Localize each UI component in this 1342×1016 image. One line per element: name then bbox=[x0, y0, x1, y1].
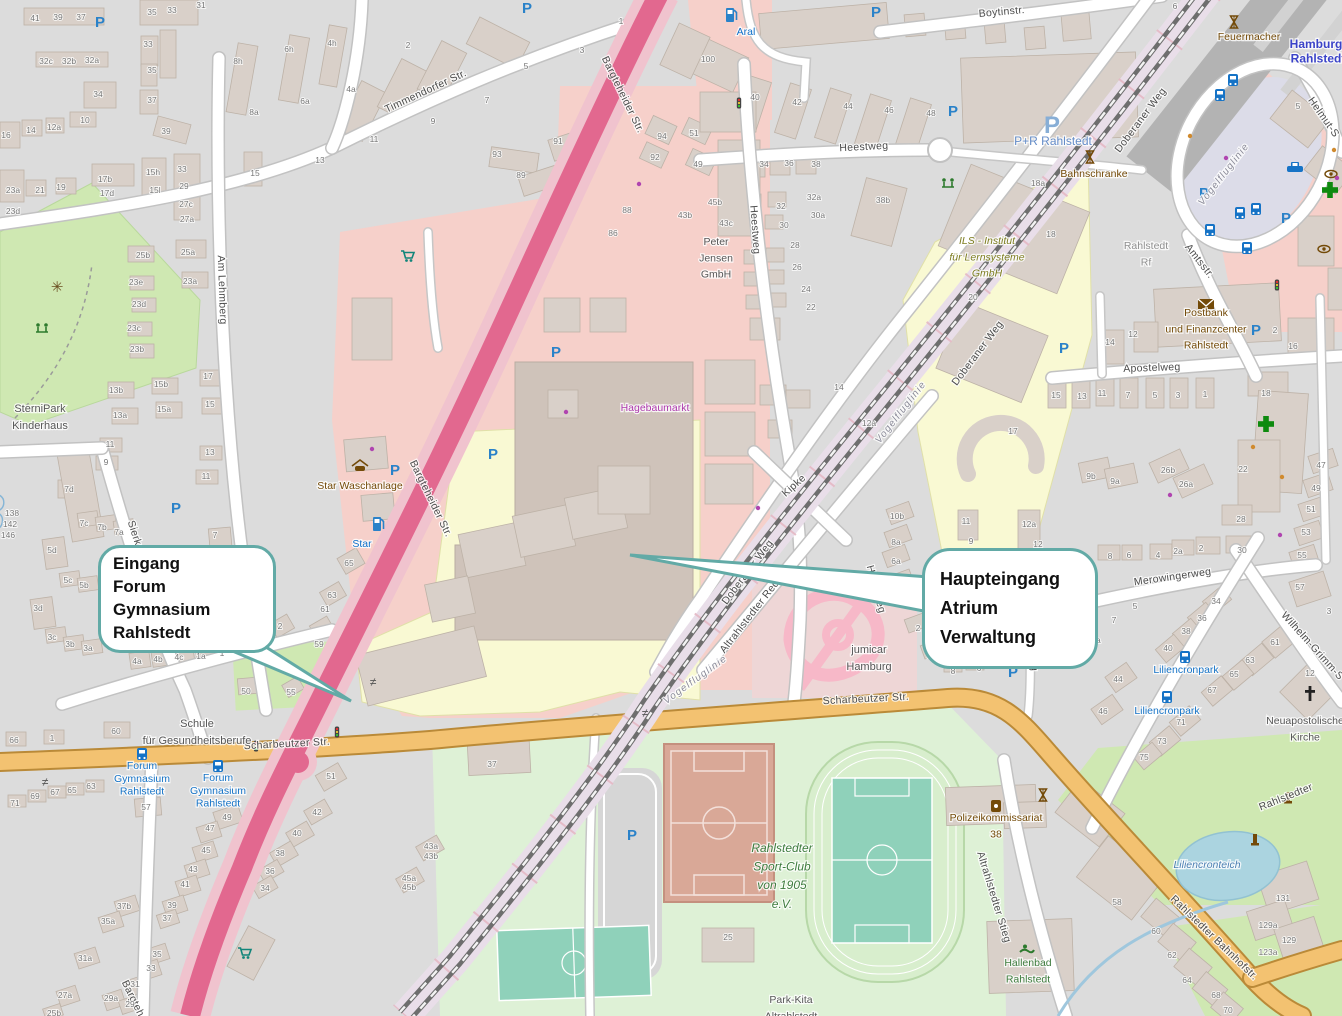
house-number: 28 bbox=[1236, 514, 1246, 524]
house-number: 123a bbox=[1259, 947, 1278, 957]
building bbox=[344, 436, 389, 472]
house-number: 32 bbox=[776, 201, 786, 211]
house-number: 57 bbox=[1295, 582, 1305, 592]
house-number: 12a bbox=[862, 418, 876, 428]
house-number: 9 bbox=[969, 536, 974, 546]
building bbox=[766, 248, 784, 262]
house-number: 15b bbox=[154, 379, 168, 389]
house-number: 14 bbox=[834, 382, 844, 392]
house-number: 18 bbox=[1046, 229, 1056, 239]
house-number: 33 bbox=[146, 963, 156, 973]
poi-label: Hallenbad bbox=[1004, 957, 1051, 969]
callout-line: Haupteingang bbox=[940, 565, 1080, 594]
house-number: 25 bbox=[723, 932, 733, 942]
house-number: 58 bbox=[1112, 897, 1122, 907]
house-number: 92 bbox=[650, 152, 660, 162]
house-number: 29 bbox=[179, 181, 189, 191]
callout-haupteingang-atrium: Haupteingang Atrium Verwaltung bbox=[922, 548, 1098, 669]
house-number: 35 bbox=[147, 7, 157, 17]
house-number: 33 bbox=[167, 5, 177, 15]
house-number: 131 bbox=[1276, 893, 1290, 903]
house-number: 23d bbox=[132, 299, 146, 309]
police-icon bbox=[991, 800, 1001, 812]
house-number: 25b bbox=[136, 250, 150, 260]
bus-stop-icon bbox=[1235, 207, 1245, 219]
parking-icon: P bbox=[1281, 210, 1291, 227]
poi-label: Neuapostolische bbox=[1266, 715, 1342, 727]
house-number: 3b bbox=[65, 639, 75, 649]
callout-line: Forum Gymnasium bbox=[113, 576, 261, 622]
traffic-light-icon bbox=[335, 727, 339, 738]
house-number: 14 bbox=[1105, 337, 1115, 347]
house-number: 63 bbox=[1245, 655, 1255, 665]
building bbox=[590, 298, 626, 332]
house-number: 67 bbox=[1207, 685, 1217, 695]
bus-stop-icon bbox=[137, 748, 147, 760]
house-number: 3d bbox=[33, 603, 43, 613]
house-number: 29 bbox=[125, 999, 135, 1009]
building bbox=[1298, 216, 1334, 266]
poi-label: und Finanzcenter bbox=[1165, 323, 1247, 335]
building bbox=[1238, 440, 1280, 512]
house-number: 4b bbox=[153, 654, 163, 664]
house-number: 43b bbox=[678, 210, 692, 220]
house-number: 93 bbox=[492, 149, 502, 159]
house-number: 1 bbox=[1203, 389, 1208, 399]
poi-dot-icon bbox=[756, 506, 760, 510]
house-number: 88 bbox=[622, 205, 632, 215]
house-number: 66 bbox=[9, 735, 19, 745]
building bbox=[1024, 26, 1046, 50]
house-number: 4 bbox=[905, 594, 910, 604]
house-number: 31a bbox=[78, 953, 92, 963]
callout-line: Eingang bbox=[113, 553, 261, 576]
poi-label: Altrahlstedt bbox=[765, 1010, 818, 1016]
house-number: 34 bbox=[93, 89, 103, 99]
house-number: 15 bbox=[1051, 390, 1061, 400]
house-number: 3 bbox=[1176, 390, 1181, 400]
bus-stop-icon bbox=[1215, 89, 1225, 101]
house-number: 13 bbox=[205, 447, 215, 457]
house-number: 4a bbox=[132, 656, 142, 666]
parking-icon: P bbox=[171, 500, 181, 517]
parking-icon: P bbox=[551, 344, 561, 361]
house-number: 8 bbox=[1108, 551, 1113, 561]
house-number: 65 bbox=[67, 785, 77, 795]
house-number: 36 bbox=[784, 158, 794, 168]
parking-icon: P bbox=[488, 446, 498, 463]
house-number: 40 bbox=[1163, 643, 1173, 653]
poi-label: GmbH bbox=[701, 269, 731, 281]
house-number: 38 bbox=[811, 159, 821, 169]
house-number: 73 bbox=[1157, 736, 1167, 746]
poi-label: für Gesundheitsberufe bbox=[143, 735, 252, 747]
parking-icon: P bbox=[1059, 340, 1069, 357]
transit-stop-label: Rahlstedt bbox=[120, 786, 164, 798]
house-number: 17b bbox=[98, 174, 112, 184]
house-number: 37 bbox=[147, 95, 157, 105]
house-number: 3c bbox=[48, 632, 58, 642]
street-label: Heestweg bbox=[839, 140, 889, 155]
map-canvas: PPPPPPPPPPPPPPP✳≠≠≠ Timmendorfer Str.Bar… bbox=[0, 0, 1342, 1016]
house-number: 4a bbox=[898, 577, 908, 587]
house-number: 23b bbox=[130, 344, 144, 354]
house-number: 22 bbox=[1238, 464, 1248, 474]
house-number: 61 bbox=[1270, 637, 1280, 647]
house-number: 42 bbox=[312, 807, 322, 817]
house-number: 32b bbox=[62, 56, 76, 66]
house-number: 24 bbox=[801, 284, 811, 294]
house-number: 31 bbox=[196, 0, 206, 10]
house-number: 34 bbox=[260, 883, 270, 893]
poi-label: e.V. bbox=[772, 897, 792, 911]
poi-label: Polizeikommissariat bbox=[950, 812, 1043, 824]
house-number: 51 bbox=[326, 771, 336, 781]
parking-icon: P bbox=[627, 827, 637, 844]
house-number: 41 bbox=[180, 879, 190, 889]
transit-stop-label: Gymnasium bbox=[190, 785, 246, 797]
bus-stop-icon bbox=[1162, 691, 1172, 703]
poi-label: Rahlstedt bbox=[1184, 340, 1228, 352]
house-number: 19 bbox=[56, 182, 66, 192]
building bbox=[705, 464, 753, 504]
house-number: 5 bbox=[524, 61, 529, 71]
house-number: 6a bbox=[891, 556, 901, 566]
house-number: 13 bbox=[315, 155, 325, 165]
house-number: 36 bbox=[1197, 613, 1207, 623]
house-number: 49 bbox=[222, 812, 232, 822]
house-number: 8a bbox=[891, 537, 901, 547]
poi-label: Rf bbox=[1141, 256, 1152, 268]
poi-label: Aral bbox=[737, 26, 756, 38]
house-number: 15l bbox=[149, 185, 160, 195]
house-number: 35 bbox=[152, 949, 162, 959]
house-number: 42 bbox=[792, 97, 802, 107]
traffic-light-icon bbox=[1275, 280, 1279, 291]
poi-dot-icon bbox=[1251, 445, 1255, 449]
house-number: 6h bbox=[284, 44, 294, 54]
building bbox=[352, 298, 392, 360]
house-number: 7a bbox=[114, 527, 124, 537]
house-number: 51 bbox=[689, 128, 699, 138]
house-number: 129a bbox=[1259, 920, 1278, 930]
transit-stop-label: Rahlstedt bbox=[196, 798, 240, 810]
house-number: 40 bbox=[292, 828, 302, 838]
house-number: 68 bbox=[1211, 990, 1221, 1000]
house-number: 30a bbox=[811, 210, 825, 220]
bus-stop-icon bbox=[1180, 651, 1190, 663]
house-number: 129 bbox=[1282, 935, 1296, 945]
poi-label: Hamburg bbox=[846, 661, 891, 673]
poi-label: Hagebaumarkt bbox=[621, 402, 690, 414]
house-number: 43c bbox=[719, 218, 733, 228]
house-number: 3 bbox=[580, 45, 585, 55]
house-number: 36 bbox=[265, 866, 275, 876]
house-number: 12a bbox=[1022, 519, 1036, 529]
house-number: 60 bbox=[111, 726, 121, 736]
house-number: 67 bbox=[50, 787, 60, 797]
house-number: 33 bbox=[143, 39, 153, 49]
house-number: 6 bbox=[1127, 550, 1132, 560]
house-number: 46 bbox=[1098, 706, 1108, 716]
house-number: 2 bbox=[406, 40, 411, 50]
house-number: 15h bbox=[146, 167, 160, 177]
house-number: 17d bbox=[100, 188, 114, 198]
poi-label: Feuermacher bbox=[1218, 31, 1281, 43]
poi-dot-icon bbox=[1278, 533, 1282, 537]
house-number: 2 bbox=[1273, 325, 1278, 335]
house-number: 48 bbox=[926, 108, 936, 118]
callout-line: Verwaltung bbox=[940, 623, 1080, 652]
house-number: 39 bbox=[167, 900, 177, 910]
house-number: 25b bbox=[47, 1008, 61, 1016]
poi-label: Peter bbox=[703, 236, 729, 248]
house-number: 7 bbox=[1126, 390, 1131, 400]
house-number: 49 bbox=[1311, 483, 1321, 493]
house-number: 45 bbox=[201, 845, 211, 855]
house-number: 14 bbox=[26, 125, 36, 135]
house-number: 10b bbox=[890, 511, 904, 521]
house-number: 4 bbox=[1156, 550, 1161, 560]
house-number: 71 bbox=[1176, 717, 1186, 727]
house-number: 35 bbox=[147, 65, 157, 75]
traffic-light-icon bbox=[737, 98, 741, 109]
house-number: 23e bbox=[129, 277, 143, 287]
house-number: 17 bbox=[1008, 426, 1018, 436]
house-number: 12 bbox=[1305, 668, 1315, 678]
house-number: 5d bbox=[47, 545, 57, 555]
poi-label: GmbH bbox=[972, 268, 1003, 280]
house-number: 59 bbox=[314, 639, 324, 649]
house-number: 86 bbox=[608, 228, 618, 238]
house-number: 55 bbox=[1297, 550, 1307, 560]
house-number: 4h bbox=[327, 38, 337, 48]
house-number: 53 bbox=[1301, 527, 1311, 537]
poi-dot-icon bbox=[1168, 493, 1172, 497]
house-number: 23c bbox=[127, 323, 141, 333]
bus-stop-icon bbox=[1251, 203, 1261, 215]
house-number: 49 bbox=[693, 159, 703, 169]
poi-label: für Lernsysteme bbox=[949, 251, 1024, 263]
parking-icon: P bbox=[871, 4, 881, 21]
house-number: 22 bbox=[806, 302, 816, 312]
house-number: 63 bbox=[86, 781, 96, 791]
house-number: 38 bbox=[275, 848, 285, 858]
poi-dot-icon bbox=[1335, 176, 1339, 180]
house-number: 25a bbox=[181, 247, 195, 257]
street-label: Apostelweg bbox=[1123, 361, 1181, 375]
house-number: 4a bbox=[346, 84, 356, 94]
house-number: 11 bbox=[370, 134, 379, 144]
house-number: 26 bbox=[792, 262, 802, 272]
house-number: 55 bbox=[286, 687, 296, 697]
house-number: 15 bbox=[205, 399, 215, 409]
building bbox=[705, 360, 755, 404]
house-number: 7b bbox=[97, 522, 107, 532]
house-number: 65 bbox=[1229, 669, 1239, 679]
house-number: 3 bbox=[1327, 606, 1332, 616]
house-number: 18a bbox=[1031, 178, 1045, 188]
building bbox=[786, 390, 810, 408]
poi-label: SterniPark bbox=[14, 403, 66, 415]
house-number: 47 bbox=[1316, 460, 1326, 470]
house-number: 100 bbox=[701, 54, 715, 64]
map-screenshot: PPPPPPPPPPPPPPP✳≠≠≠ Timmendorfer Str.Bar… bbox=[0, 0, 1342, 1016]
house-number: 33 bbox=[177, 164, 187, 174]
house-number: 30 bbox=[779, 220, 789, 230]
house-number: 43 bbox=[188, 864, 198, 874]
house-number: 45b bbox=[402, 882, 416, 892]
bus-stop-icon bbox=[1228, 74, 1238, 86]
house-number: 20 bbox=[968, 292, 978, 302]
poi-label: Rahlstedt bbox=[1006, 973, 1050, 985]
house-number: 32c bbox=[39, 56, 53, 66]
house-number: 5b bbox=[79, 580, 89, 590]
house-number: 51 bbox=[1306, 504, 1316, 514]
house-number: 34 bbox=[1211, 596, 1221, 606]
house-number: 38b bbox=[876, 195, 890, 205]
house-number: 65 bbox=[344, 558, 354, 568]
house-number: 7 bbox=[485, 95, 490, 105]
house-number: 23a bbox=[6, 185, 20, 195]
house-number: 21 bbox=[35, 185, 45, 195]
house-number: 7d bbox=[64, 484, 74, 494]
poi-label: Schule bbox=[180, 718, 214, 730]
poi-label: Sport-Club bbox=[753, 860, 811, 874]
poi-label: von 1905 bbox=[757, 878, 807, 892]
house-number: 13 bbox=[1077, 391, 1087, 401]
house-number: 44 bbox=[843, 101, 853, 111]
poi-dot-icon bbox=[564, 410, 568, 414]
poi-label: Rahlstedter bbox=[751, 841, 813, 855]
level-crossing-icon: ≠ bbox=[642, 706, 649, 720]
transit-stop-label: Rahlstedt bbox=[1291, 52, 1342, 66]
house-number: 9a bbox=[1110, 476, 1120, 486]
poi-label: Park-Kita bbox=[769, 994, 812, 1006]
transit-stop-label: Gymnasium bbox=[114, 773, 170, 785]
house-number: 31 bbox=[130, 979, 140, 989]
house-number: 11 bbox=[962, 516, 971, 526]
house-number: 13a bbox=[113, 410, 127, 420]
poi-label: Liliencronteich bbox=[1173, 859, 1240, 871]
poi-label: P+R Rahlstedt bbox=[1014, 134, 1092, 148]
house-number: 38 bbox=[1181, 626, 1191, 636]
building bbox=[30, 597, 56, 630]
house-number: 47 bbox=[205, 823, 215, 833]
house-number: 64 bbox=[1182, 975, 1192, 985]
house-number: 69 bbox=[30, 791, 40, 801]
parking-icon: P bbox=[95, 14, 105, 31]
house-number: 2 bbox=[1199, 543, 1204, 553]
house-number: 138 bbox=[5, 508, 19, 518]
house-number: 40 bbox=[750, 92, 760, 102]
house-number: 5 bbox=[1133, 601, 1138, 611]
house-number: 46 bbox=[884, 105, 894, 115]
house-number: 10 bbox=[80, 115, 90, 125]
house-number: 12a bbox=[47, 122, 61, 132]
building bbox=[598, 466, 650, 514]
house-number: 6a bbox=[300, 96, 310, 106]
poi-dot-icon bbox=[1332, 148, 1336, 152]
house-number: 32a bbox=[807, 192, 821, 202]
house-number: 16 bbox=[1288, 341, 1298, 351]
house-number: 89 bbox=[516, 170, 526, 180]
building bbox=[1150, 544, 1172, 559]
house-number: 7c bbox=[80, 518, 90, 528]
house-number: 91 bbox=[553, 136, 563, 146]
house-number: 23a bbox=[183, 276, 197, 286]
house-number: 62 bbox=[1167, 950, 1177, 960]
poi-label: Kirche bbox=[1290, 731, 1320, 743]
poi-label: Jensen bbox=[699, 252, 733, 264]
poi-label: Star Waschanlage bbox=[317, 480, 403, 492]
house-number: 1 bbox=[619, 16, 624, 26]
house-number: 57 bbox=[141, 802, 151, 812]
callout-line: Rahlstedt bbox=[113, 622, 261, 645]
poi-label: Postbank bbox=[1184, 307, 1229, 319]
house-number: 5 bbox=[1296, 101, 1301, 111]
house-number: 1 bbox=[50, 733, 55, 743]
house-number: 16 bbox=[1, 130, 11, 140]
building bbox=[1122, 545, 1142, 560]
poi-dot-icon bbox=[1280, 475, 1284, 479]
house-number: 9 bbox=[431, 116, 436, 126]
house-number: 13b bbox=[109, 385, 123, 395]
house-number: 50 bbox=[241, 686, 251, 696]
parking-icon: P bbox=[390, 462, 400, 479]
house-number: 7 bbox=[1112, 615, 1117, 625]
transit-stop-label: Hamburg- bbox=[1290, 37, 1342, 51]
house-number: 6 bbox=[1173, 1, 1178, 11]
poi-label: Star bbox=[352, 538, 372, 550]
house-number: 18 bbox=[1261, 388, 1271, 398]
house-number: 63 bbox=[327, 590, 337, 600]
house-number: 60 bbox=[1151, 926, 1161, 936]
house-number: 12 bbox=[1128, 329, 1138, 339]
transit-stop-label: Liliencronpark bbox=[1153, 664, 1219, 676]
house-number: 27c bbox=[179, 199, 193, 209]
bus-stop-icon bbox=[1242, 242, 1252, 254]
house-number: 43b bbox=[424, 851, 438, 861]
house-number: 61 bbox=[320, 604, 330, 614]
level-crossing-icon: ≠ bbox=[42, 775, 49, 789]
parking-icon: P bbox=[1251, 322, 1261, 339]
poi-label: Bahnschranke bbox=[1060, 168, 1127, 180]
house-number: 15a bbox=[157, 404, 171, 414]
level-crossing-icon: ≠ bbox=[370, 675, 377, 689]
house-number: 5c bbox=[64, 575, 74, 585]
street-label: Am Lehmberg bbox=[215, 255, 229, 325]
house-number: 45b bbox=[708, 197, 722, 207]
poi-dot-icon bbox=[637, 182, 641, 186]
house-number: 94 bbox=[657, 131, 667, 141]
bus-stop-icon bbox=[213, 760, 223, 772]
poi-label: ILS - Institut bbox=[959, 235, 1016, 247]
house-number: 8h bbox=[233, 56, 243, 66]
house-number: 9 bbox=[104, 457, 109, 467]
house-number: 37 bbox=[76, 12, 86, 22]
poi-label: Kinderhaus bbox=[12, 420, 68, 432]
house-number: 26a bbox=[1179, 479, 1193, 489]
bus-stop-icon bbox=[1205, 224, 1215, 236]
poi-dot-icon bbox=[1188, 134, 1192, 138]
house-number: 17 bbox=[203, 371, 213, 381]
building bbox=[544, 298, 580, 332]
house-number: 41 bbox=[30, 13, 40, 23]
house-number: 11 bbox=[202, 471, 211, 481]
poi-label: jumicar bbox=[850, 644, 887, 656]
house-number: 71 bbox=[10, 798, 20, 808]
